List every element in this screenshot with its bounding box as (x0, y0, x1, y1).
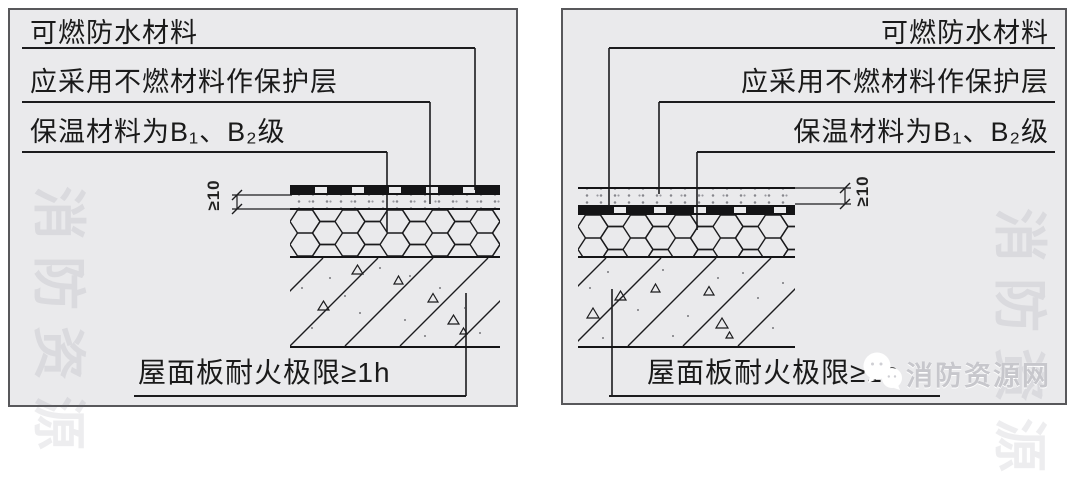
site-watermark: 消防资源网 (860, 350, 1051, 396)
concrete-hatch (290, 258, 500, 346)
site-watermark-text: 消防资源网 (906, 354, 1051, 393)
honeycomb-pattern (290, 210, 500, 256)
wechat-icon (860, 350, 906, 396)
waterproof-layer (290, 185, 500, 195)
roof-slab-layer (578, 258, 795, 348)
waterproof-layer (578, 205, 795, 215)
honeycomb-pattern (578, 215, 795, 256)
concrete-hatch (578, 258, 795, 346)
panel-right: 可燃防水材料 应采用不燃材料作保护层 保温材料为B₁、B₂级 屋面板耐火极限≥1… (561, 8, 1067, 405)
insulation-layer (290, 210, 500, 258)
protective-layer (578, 187, 795, 205)
insulation-layer (578, 215, 795, 258)
waterproof-hatch (578, 207, 795, 213)
protective-layer (290, 195, 500, 210)
roof-slab-layer (290, 258, 500, 348)
panel-left: 可燃防水材料 应采用不燃材料作保护层 保温材料为B₁、B₂级 屋面板耐火极限≥1… (8, 8, 518, 407)
waterproof-hatch (290, 187, 500, 193)
